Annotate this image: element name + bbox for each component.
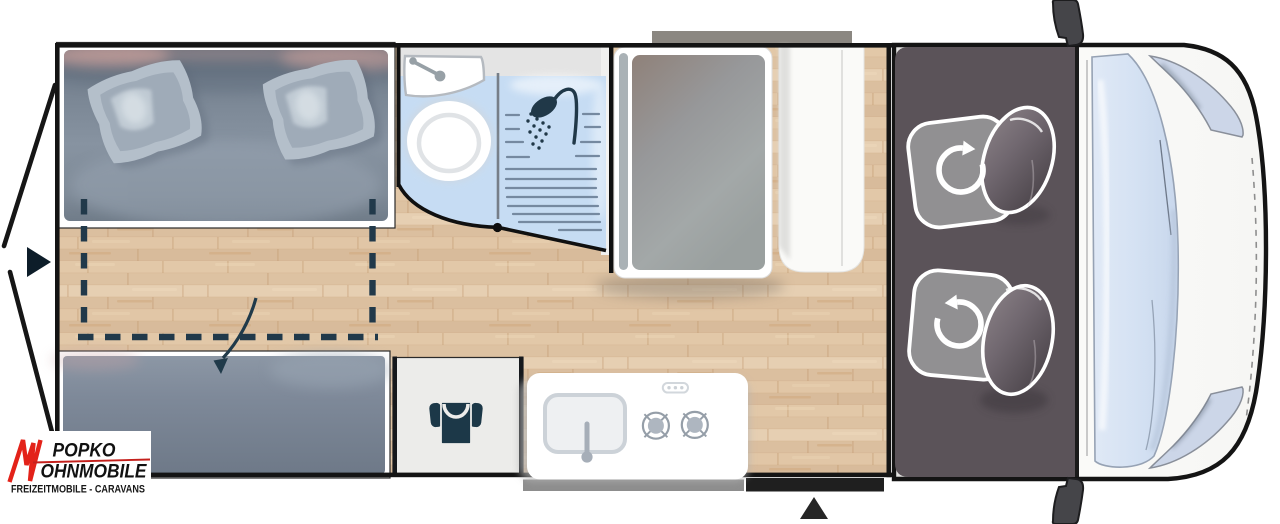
- svg-text:OHNMOBILE: OHNMOBILE: [41, 462, 148, 483]
- svg-text:FREIZEITMOBILE - CARAVANS: FREIZEITMOBILE - CARAVANS: [11, 484, 145, 496]
- svg-text:POPKO: POPKO: [53, 441, 116, 462]
